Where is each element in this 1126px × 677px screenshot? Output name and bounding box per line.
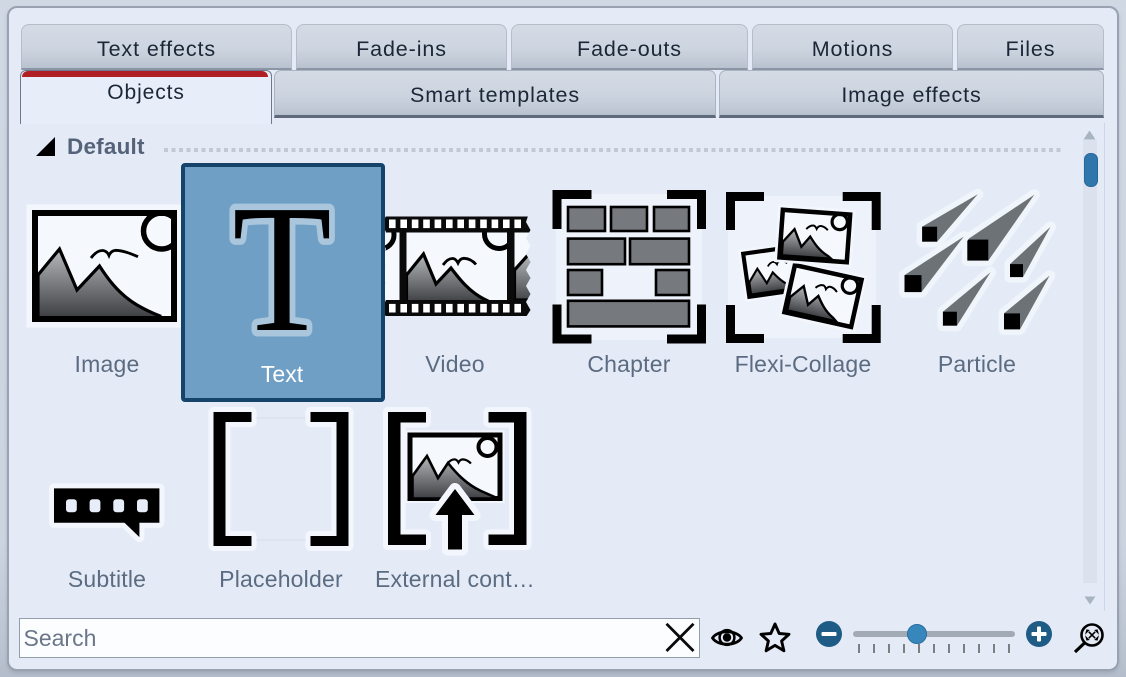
svg-text:Text: Text: [261, 361, 304, 387]
svg-text:T: T: [232, 168, 331, 370]
